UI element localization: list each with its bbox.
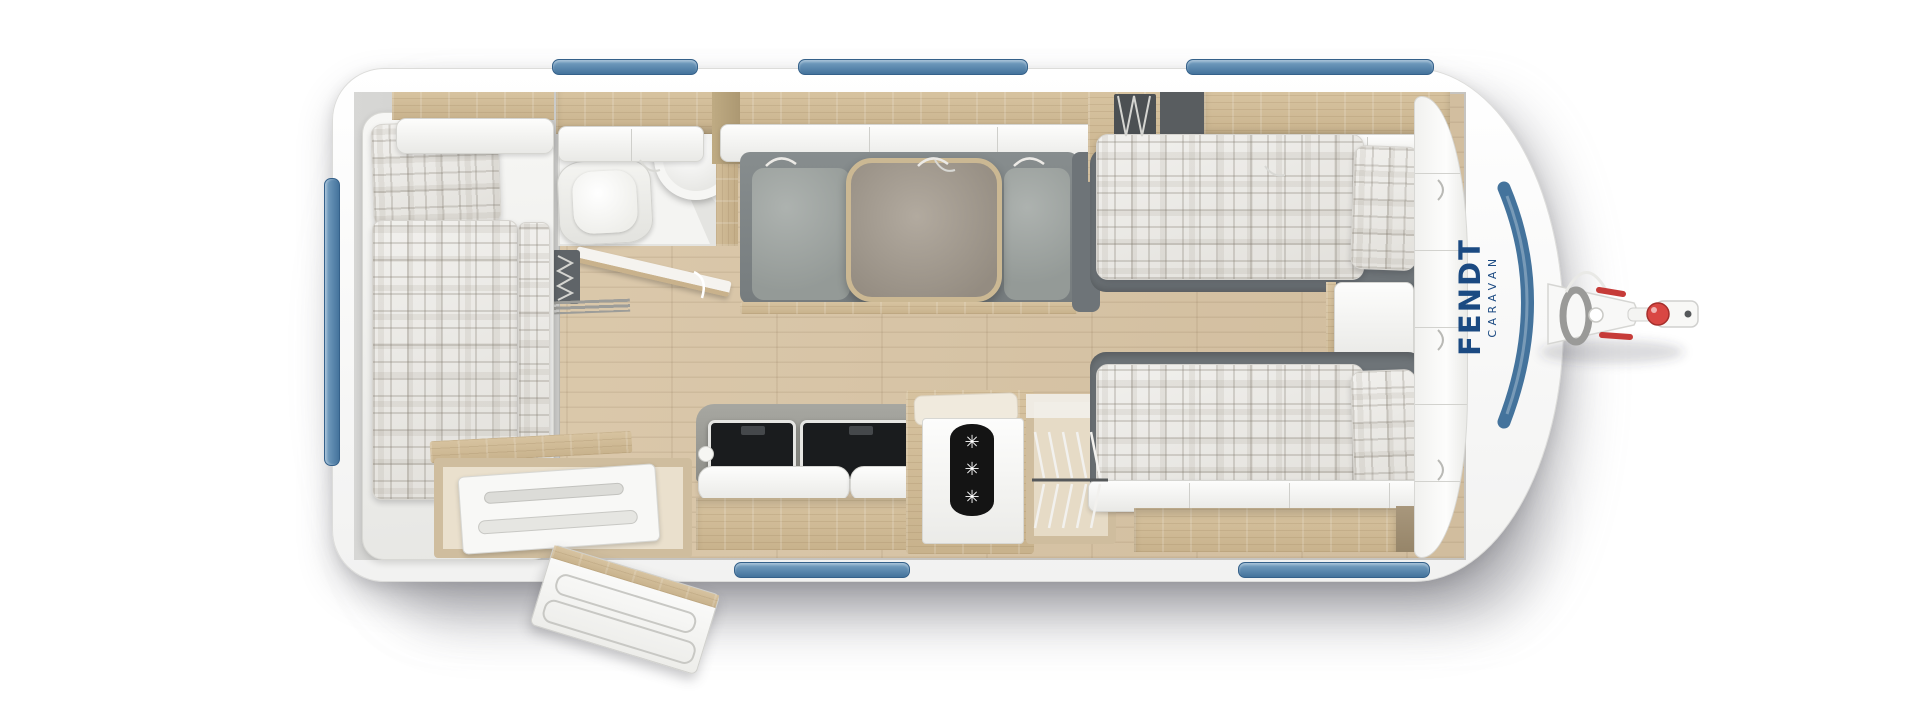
hitch-shadow xyxy=(1540,340,1684,364)
heater-zigzag-icon xyxy=(1118,96,1150,136)
tow-hitch xyxy=(1540,272,1698,364)
coupling-knob-red xyxy=(1647,303,1669,325)
hitch-pin-red-top xyxy=(1599,290,1623,294)
cabinet-handle-arcs xyxy=(1438,180,1443,480)
overlay-details xyxy=(0,0,1920,707)
headrest-wires xyxy=(766,158,1044,166)
heater-zigzag-icon xyxy=(558,256,572,300)
wardrobe-hangers-icon xyxy=(1032,432,1108,528)
coupling-knob-highlight xyxy=(1651,307,1657,313)
hitch-hub xyxy=(1589,308,1603,322)
hitch-pin-red-bottom xyxy=(1602,335,1630,337)
locker-pull-wires xyxy=(640,160,1285,176)
coupling-bolt xyxy=(1685,311,1692,318)
door-handle-wire xyxy=(694,272,704,298)
caravan-floorplan: ✳ ✳ ✳ FENDT CARAVAN xyxy=(0,0,1920,707)
